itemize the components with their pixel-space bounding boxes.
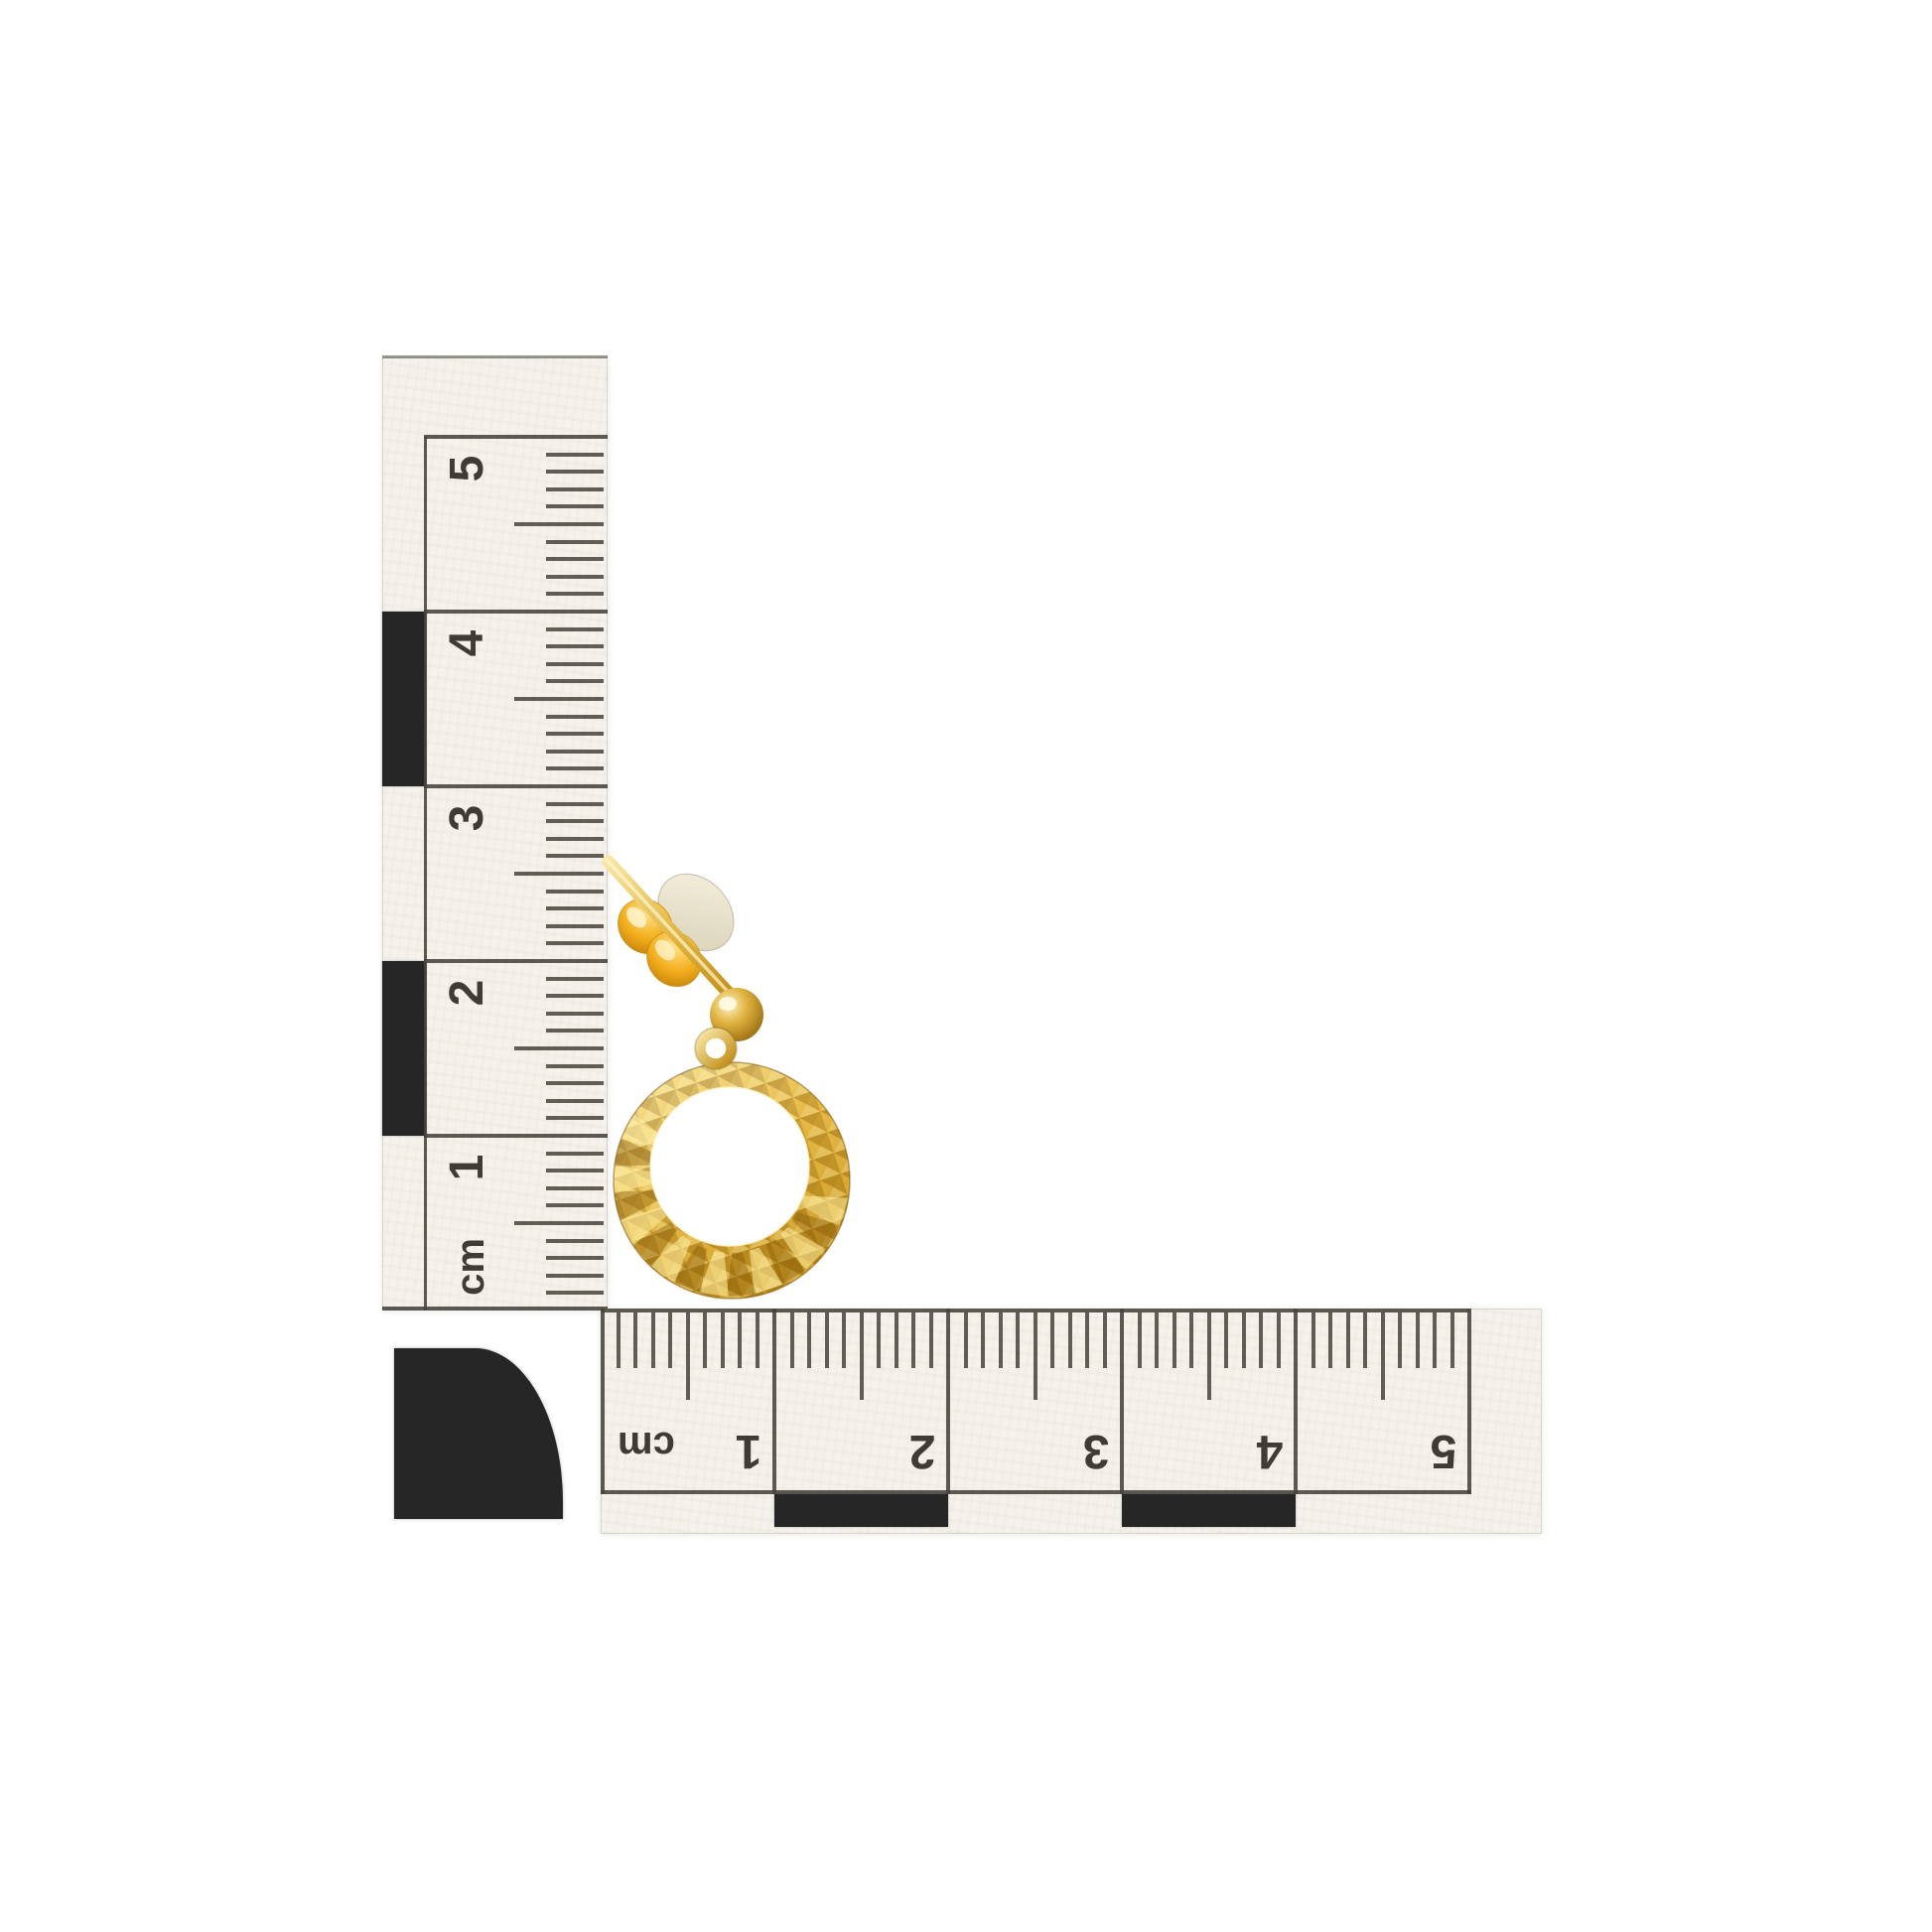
post-ball-glint xyxy=(719,997,737,1011)
mm-tick xyxy=(964,1312,968,1368)
mm-tick xyxy=(1346,1312,1350,1368)
mm-tick xyxy=(546,627,604,631)
vertical-ruler-top-edge xyxy=(382,355,608,358)
mm-tick xyxy=(546,819,604,823)
vertical-ruler-number: 3 xyxy=(435,786,498,850)
mm-tick xyxy=(1068,1312,1072,1368)
mm-tick xyxy=(1242,1312,1246,1368)
mm-tick xyxy=(1189,1312,1193,1368)
checker-block xyxy=(382,961,426,1136)
scene-root: { "scene": { "width": 1946, "height": 19… xyxy=(0,0,1932,1932)
mm-tick xyxy=(546,504,604,508)
horizontal-ruler-number: 4 xyxy=(1238,1420,1302,1483)
vertical-ruler-separator xyxy=(424,437,427,1311)
mm-tick xyxy=(546,750,604,754)
mm-tick xyxy=(546,592,604,596)
mm-tick xyxy=(546,662,604,666)
mm-tick xyxy=(1363,1312,1367,1368)
horizontal-ruler-number: 3 xyxy=(1064,1420,1128,1483)
mm-tick xyxy=(1328,1312,1332,1368)
mm-tick xyxy=(546,679,604,683)
mm-tick xyxy=(546,766,604,770)
mm-tick xyxy=(546,453,604,457)
mm-tick xyxy=(1034,1312,1037,1400)
mm-tick xyxy=(1259,1312,1263,1368)
earring xyxy=(536,824,923,1330)
mm-tick xyxy=(1311,1312,1315,1368)
vertical-ruler-unit-label: cm xyxy=(449,1222,492,1311)
connector-loop xyxy=(701,1034,732,1064)
mm-tick xyxy=(1416,1312,1420,1368)
horizontal-ruler-number: 5 xyxy=(1412,1420,1475,1483)
checker-block xyxy=(774,1494,948,1527)
horizontal-ruler-unit-label: cm xyxy=(602,1424,691,1467)
mm-tick xyxy=(546,470,604,474)
mm-tick xyxy=(999,1312,1003,1368)
mm-tick xyxy=(1224,1312,1228,1368)
mm-tick xyxy=(1016,1312,1020,1368)
mm-tick xyxy=(1450,1312,1454,1368)
mm-tick xyxy=(1207,1312,1211,1400)
mm-tick xyxy=(514,522,604,526)
vertical-ruler-number: 2 xyxy=(435,961,498,1025)
mm-tick xyxy=(546,575,604,579)
mm-tick xyxy=(981,1312,985,1368)
vertical-ruler-number: 4 xyxy=(435,612,498,675)
mm-tick xyxy=(546,540,604,544)
checker-block xyxy=(1122,1494,1296,1527)
horizontal-ruler-bottom-line xyxy=(601,1490,1471,1494)
corner-scale-block xyxy=(394,1348,563,1519)
mm-tick xyxy=(1381,1312,1385,1400)
mm-tick xyxy=(929,1312,933,1368)
mm-tick xyxy=(1433,1312,1437,1368)
mm-tick xyxy=(1173,1312,1176,1368)
mm-tick xyxy=(1050,1312,1054,1368)
mm-tick xyxy=(1085,1312,1089,1368)
mm-tick xyxy=(546,487,604,491)
mm-tick xyxy=(546,732,604,736)
mm-tick xyxy=(1138,1312,1142,1368)
horizontal-ruler-number: 1 xyxy=(717,1420,780,1483)
mm-tick xyxy=(546,802,604,806)
mm-tick xyxy=(546,557,604,561)
mm-tick xyxy=(546,644,604,648)
mm-tick xyxy=(1398,1312,1402,1368)
mm-tick xyxy=(1277,1312,1281,1368)
vertical-ruler-number: 1 xyxy=(435,1136,498,1199)
pendant-inner-rim xyxy=(650,1087,809,1246)
mm-tick xyxy=(1155,1312,1159,1368)
mm-tick xyxy=(514,697,604,701)
mm-tick xyxy=(1103,1312,1107,1368)
checker-block xyxy=(382,612,426,786)
vertical-ruler-number: 5 xyxy=(435,437,498,500)
horizontal-ruler-number: 2 xyxy=(891,1420,954,1483)
mm-tick xyxy=(546,715,604,719)
